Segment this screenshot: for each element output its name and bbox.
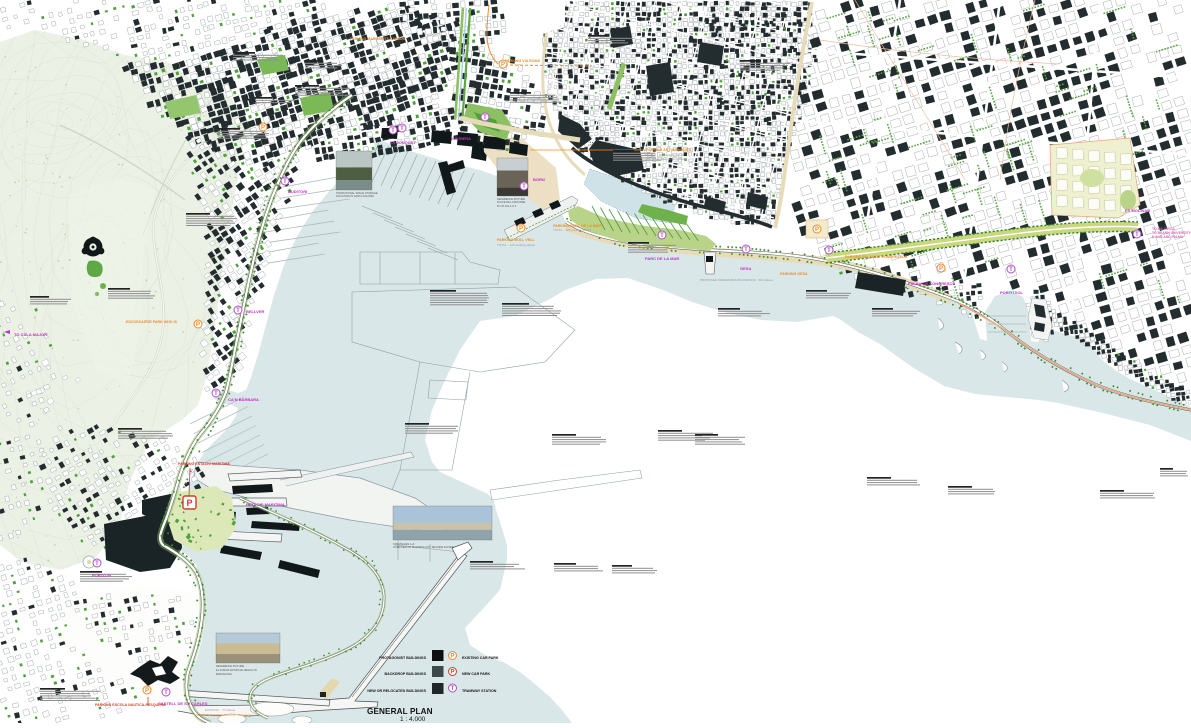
svg-text:PARKING ESCOLA NAUTICA-PESQUER: PARKING ESCOLA NAUTICA-PESQUERA: [95, 703, 166, 707]
svg-text:T: T: [1135, 232, 1139, 238]
svg-text:GESA: GESA: [740, 266, 751, 271]
svg-text:PARKING VIA ROMA: PARKING VIA ROMA: [505, 59, 541, 63]
svg-text:T: T: [95, 561, 99, 567]
svg-text:T: T: [236, 308, 240, 314]
svg-text:T: T: [283, 179, 287, 185]
svg-text:EXISTING 77 places: EXISTING 77 places: [205, 708, 236, 712]
svg-text:TOTAL 125 parking places: TOTAL 125 parking places: [497, 243, 535, 247]
svg-text:PARC DE LA MAR: PARC DE LA MAR: [645, 256, 679, 261]
svg-text:GENERAL PLAN: GENERAL PLAN: [367, 707, 433, 716]
svg-text:BARCELONA: BARCELONA: [216, 672, 232, 676]
svg-text:E AND AND PALMA: E AND AND PALMA: [1152, 235, 1184, 239]
svg-text:P: P: [939, 266, 943, 272]
svg-text:ES MOLINAR: ES MOLINAR: [1125, 208, 1150, 213]
svg-text:P: P: [186, 498, 192, 508]
svg-text:TO CALA MAJOR: TO CALA MAJOR: [14, 332, 47, 337]
svg-text:1 : 4.000: 1 : 4.000: [400, 716, 426, 723]
svg-text:T: T: [451, 686, 455, 692]
svg-text:T: T: [522, 184, 526, 190]
svg-text:REFERENCE PICTURE: REFERENCE PICTURE: [216, 664, 244, 668]
svg-text:OVERVIEW OF MAJORCA CITY SEASI: OVERVIEW OF MAJORCA CITY SEASIDE FACADE: [393, 545, 454, 549]
svg-text:BACKDROP BUILDINGS: BACKDROP BUILDINGS: [385, 672, 427, 676]
svg-text:NEW CAR PARK: NEW CAR PARK: [462, 672, 490, 676]
svg-text:P: P: [145, 688, 149, 694]
svg-text:T: T: [400, 126, 404, 132]
svg-text:EXISTING CAR PARK: EXISTING CAR PARK: [462, 656, 499, 660]
svg-text:T: T: [660, 233, 664, 239]
svg-text:ES JONQUET: ES JONQUET: [390, 140, 416, 145]
svg-text:EL FORUM ARTIFICIAL BEACH: EL FORUM ARTIFICIAL BEACH IN: [216, 668, 257, 672]
svg-text:P: P: [815, 227, 819, 233]
svg-text:BELLVER: BELLVER: [246, 309, 264, 314]
svg-text:P: P: [519, 226, 523, 232]
svg-text:NEW OR RELOCATED BUILDINGS: NEW OR RELOCATED BUILDINGS: [367, 689, 426, 693]
svg-text:PROPOSED UNDERGROUND PARKING: PROPOSED UNDERGROUND PARKING 600 places: [700, 278, 773, 282]
svg-text:SA RIERA: SA RIERA: [452, 136, 471, 141]
svg-text:CA'N BARBARA: CA'N BARBARA: [228, 397, 259, 402]
svg-text:P: P: [196, 322, 200, 328]
svg-text:PORTO PI: PORTO PI: [92, 573, 111, 578]
svg-text:T: T: [214, 391, 218, 397]
svg-text:T: T: [483, 115, 487, 121]
svg-text:FACILITIES IN SANTA COLOMA: FACILITIES IN SANTA COLOMA: [336, 194, 374, 198]
svg-text:T: T: [744, 247, 748, 253]
svg-text:AFTER THE INTERVENTION 100 pl: AFTER THE INTERVENTION 100 places: [196, 713, 252, 717]
svg-text:B O R D E A U X: B O R D E A U X: [497, 204, 517, 208]
svg-text:PLACE DE LA BOURSE: PLACE DE LA BOURSE: [497, 200, 526, 204]
svg-text:PARKING GESA: PARKING GESA: [780, 272, 808, 276]
svg-text:PARKING MOLL VELL: PARKING MOLL VELL: [497, 238, 535, 242]
svg-text:P: P: [501, 62, 505, 68]
svg-text:P: P: [261, 125, 265, 131]
svg-text:T: T: [391, 128, 395, 134]
svg-text:PARKING PALAU DE CONGRESSOS: PARKING PALAU DE CONGRESSOS: [845, 255, 908, 259]
svg-text:PARKING MARGARITA CAIMARI: PARKING MARGARITA CAIMARI: [350, 37, 405, 41]
svg-text:TOTAL 325 parking places: TOTAL 325 parking places: [553, 228, 591, 232]
svg-text:BORN: BORN: [533, 177, 545, 182]
svg-text:PORTITXOL: PORTITXOL: [1000, 290, 1023, 295]
svg-text:TRAMWAY STATION: TRAMWAY STATION: [462, 689, 497, 693]
svg-text:PARKING ANTONI MAURA: PARKING ANTONI MAURA: [646, 148, 692, 152]
svg-text:ESTACIO MARITIMA: ESTACIO MARITIMA: [246, 502, 285, 507]
svg-text:ESCORXADOR PARK WHO IS: ESCORXADOR PARK WHO IS: [126, 320, 177, 324]
svg-text:T: T: [164, 690, 168, 696]
svg-text:350 biomedical parking places: 350 biomedical parking places: [646, 157, 687, 161]
svg-text:AUDITORI: AUDITORI: [288, 189, 307, 194]
svg-text:P: P: [450, 654, 454, 660]
svg-text:PALAU DE CONGRESOS: PALAU DE CONGRESOS: [908, 281, 956, 286]
svg-text:P: P: [450, 670, 454, 676]
svg-text:PARKING ESTACIO MARITIMA: PARKING ESTACIO MARITIMA: [178, 462, 230, 466]
svg-text:PROTAGONIST BUILDINGS: PROTAGONIST BUILDINGS: [379, 656, 426, 660]
svg-text:T: T: [827, 248, 831, 254]
svg-text:T: T: [1009, 267, 1013, 273]
